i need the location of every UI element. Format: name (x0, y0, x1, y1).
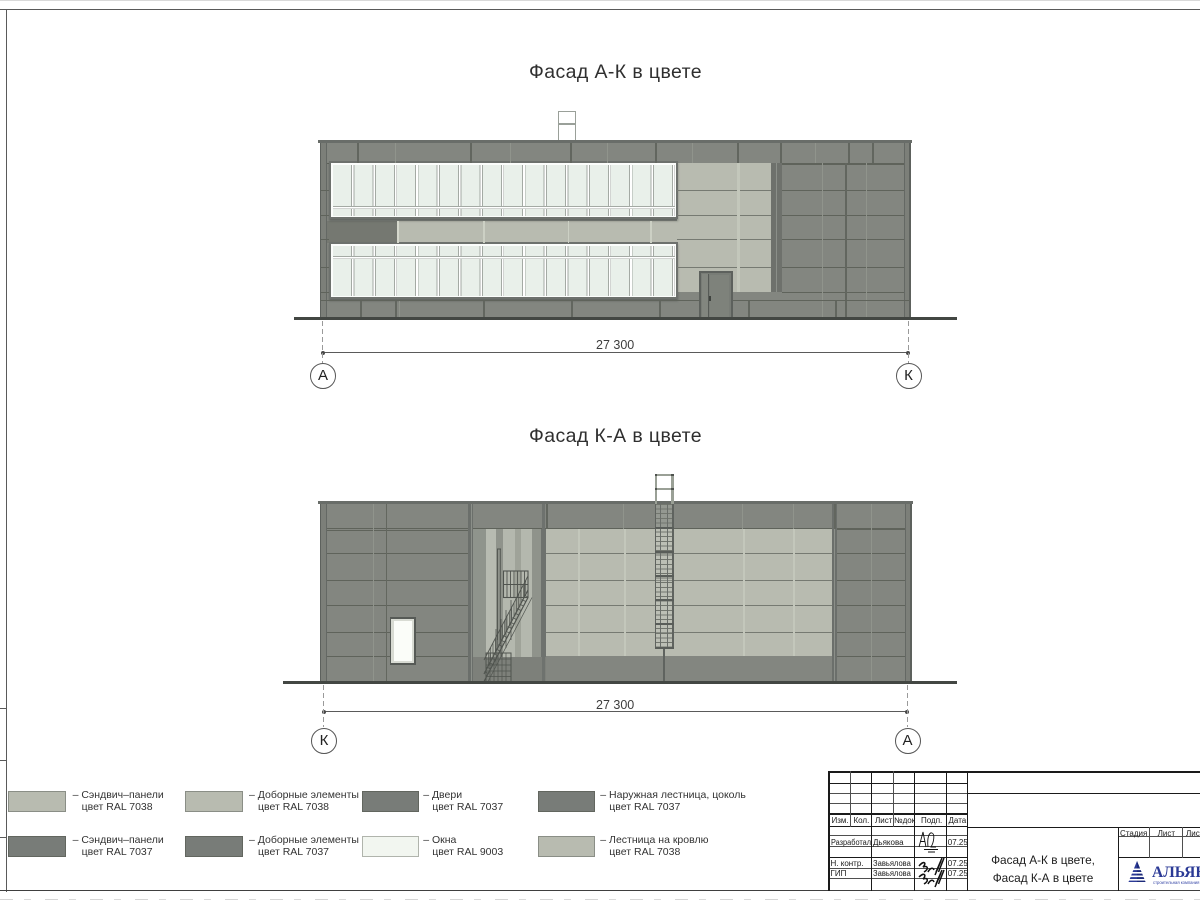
svg-text:строительная компания: строительная компания (1153, 880, 1199, 885)
svg-text:АЛЬЯН: АЛЬЯН (1152, 864, 1200, 881)
